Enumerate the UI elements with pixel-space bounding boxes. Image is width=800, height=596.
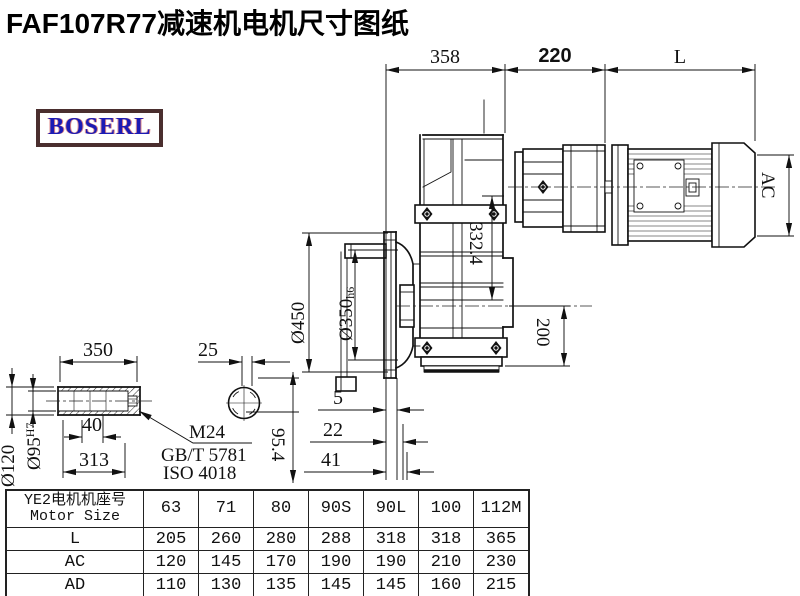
table-header-row: YE2电机机座号 Motor Size 63 71 80 90S 90L 100…	[6, 490, 529, 528]
table-cell: 145	[309, 574, 364, 596]
dim-chain-top: 358 220 L	[386, 45, 755, 480]
table-cell: 145	[199, 551, 254, 574]
table-cell: 130	[199, 574, 254, 596]
size-col-header: 63	[144, 490, 199, 528]
dim-358-label: 358	[430, 46, 460, 68]
table-cell: 260	[199, 528, 254, 551]
thread-callout-label: M24	[189, 422, 225, 443]
table-cell: 145	[364, 574, 419, 596]
table-cell: 205	[144, 528, 199, 551]
table-cell: 318	[364, 528, 419, 551]
gearbox-housing	[415, 100, 513, 372]
table-row-AC: AC 120 145 170 190 190 210 230	[6, 551, 529, 574]
size-col-header: 80	[254, 490, 309, 528]
dim-40-label: 40	[82, 414, 102, 436]
table-cell: 190	[309, 551, 364, 574]
dim-dia450-label: Ø450	[288, 302, 309, 344]
table-cell: 190	[364, 551, 419, 574]
motor-adapter	[515, 145, 614, 232]
table-header-motor-size: YE2电机机座号 Motor Size	[6, 490, 144, 528]
dim-25-label: 25	[198, 339, 218, 361]
table-cell: 120	[144, 551, 199, 574]
dimension-sheet-page: FAF107R77减速机电机尺寸图纸 BOSERL	[0, 0, 800, 596]
std-iso-label: ISO 4018	[163, 463, 236, 484]
shaft-detail	[46, 387, 152, 415]
dim-350-label: 350	[83, 339, 113, 361]
table-cell: 110	[144, 574, 199, 596]
size-col-header: 112M	[474, 490, 530, 528]
dim-dia95-label: Ø95H7	[23, 423, 45, 470]
table-cell: 365	[474, 528, 530, 551]
dim-22-label: 22	[323, 419, 343, 441]
table-cell: 230	[474, 551, 530, 574]
table-row-label: AD	[6, 574, 144, 596]
dim-41-label: 41	[321, 449, 341, 471]
table-header-en: Motor Size	[7, 509, 143, 525]
table-row-label: L	[6, 528, 144, 551]
table-cell: 280	[254, 528, 309, 551]
size-col-header: 90L	[364, 490, 419, 528]
table-cell: 135	[254, 574, 309, 596]
table-header-cn: YE2电机机座号	[7, 493, 143, 509]
motor-size-table: YE2电机机座号 Motor Size 63 71 80 90S 90L 100…	[5, 489, 530, 596]
dim-AC-label: AC	[757, 172, 778, 198]
dim-332-label: 332.4	[465, 222, 486, 265]
dim-L-label: L	[674, 46, 686, 68]
dim-5-label: 5	[333, 387, 343, 409]
size-col-header: 71	[199, 490, 254, 528]
table-cell: 215	[474, 574, 530, 596]
size-col-header: 90S	[309, 490, 364, 528]
table-cell: 160	[419, 574, 474, 596]
dim-200-label: 200	[532, 318, 553, 347]
dim-offsets: 5 22 41	[304, 378, 434, 480]
dim-dia120-label: Ø120	[0, 445, 19, 487]
table-row-L: L 205 260 280 288 318 318 365	[6, 528, 529, 551]
dim-313-label: 313	[79, 449, 109, 471]
dim-954-label: 95.4	[267, 428, 288, 462]
dim-220-label: 220	[538, 45, 571, 67]
table-cell: 210	[419, 551, 474, 574]
table-cell: 288	[309, 528, 364, 551]
table-cell: 318	[419, 528, 474, 551]
table-cell: 170	[254, 551, 309, 574]
table-row-AD: AD 110 130 135 145 145 160 215	[6, 574, 529, 596]
size-col-header: 100	[419, 490, 474, 528]
dim-dia350-label: Ø350h6	[336, 287, 357, 341]
table-row-label: AC	[6, 551, 144, 574]
